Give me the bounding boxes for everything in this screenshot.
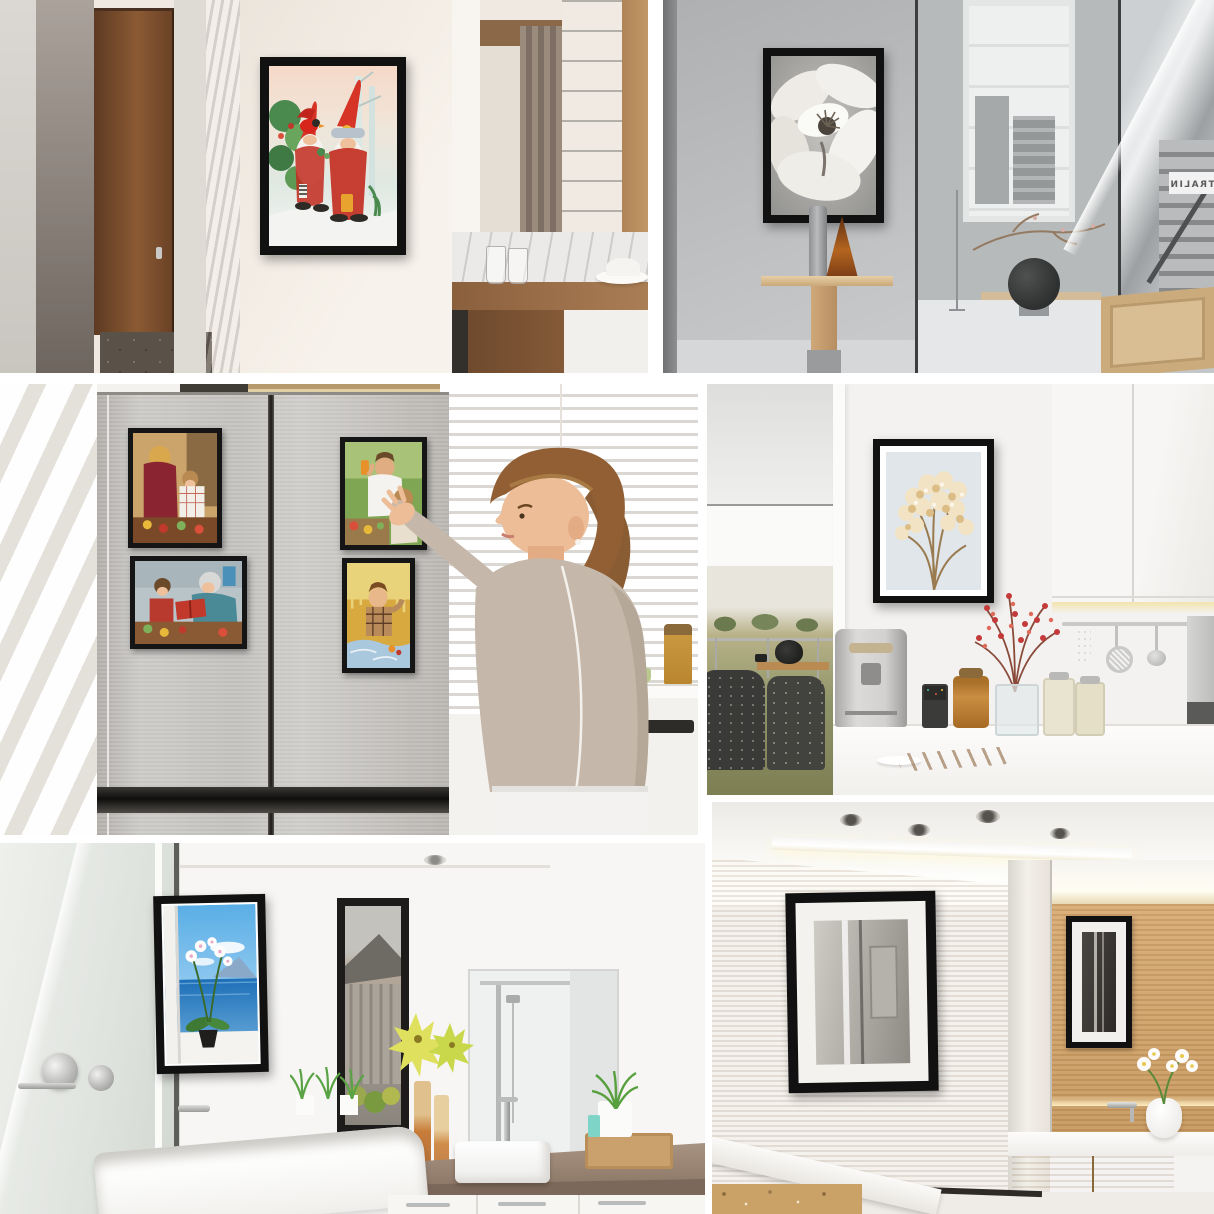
glass-vase bbox=[995, 684, 1039, 736]
wooden-tray bbox=[585, 1133, 673, 1169]
mirror-reflected-mat bbox=[1072, 922, 1126, 1042]
grass-plants bbox=[290, 1067, 364, 1099]
upper-cabinets bbox=[1052, 384, 1214, 602]
matted-frame bbox=[785, 891, 938, 1094]
white-orchid-vase bbox=[1146, 1098, 1182, 1138]
white-mat bbox=[795, 901, 928, 1083]
hallway-left-wall bbox=[0, 0, 36, 373]
desk-front bbox=[468, 310, 564, 373]
woven-chair bbox=[767, 676, 825, 770]
fridge-door-seam bbox=[268, 395, 274, 835]
magnolia-art bbox=[771, 56, 876, 215]
faucet-drop-spout bbox=[1130, 1108, 1134, 1122]
lily-flowers bbox=[388, 1001, 474, 1085]
pasta-glass-jar bbox=[1075, 682, 1105, 736]
hanging-skimmer bbox=[1106, 646, 1133, 673]
door-handle bbox=[156, 247, 162, 259]
mirror-reflected-image bbox=[1082, 932, 1116, 1032]
ceiling-recess-line bbox=[170, 865, 550, 868]
gallery-left-edge bbox=[663, 0, 677, 373]
glass-reflection-streak bbox=[0, 843, 101, 1214]
photo-reading bbox=[135, 561, 242, 644]
grass-plant bbox=[592, 1071, 640, 1109]
portafilter bbox=[861, 663, 881, 685]
drawer-handle bbox=[406, 1203, 450, 1207]
tea-cup bbox=[755, 654, 767, 662]
cabinet-seam bbox=[1132, 384, 1134, 602]
reflection-line bbox=[859, 920, 865, 1064]
ocean-orchid-art bbox=[163, 904, 258, 1064]
utensil-handle bbox=[1155, 626, 1158, 652]
patterned-sunken-rug bbox=[712, 1184, 862, 1214]
faucet-spout bbox=[498, 1097, 518, 1102]
mirror-reflection-bar bbox=[480, 981, 570, 985]
sign-text: CENTRALIN bbox=[1169, 180, 1214, 190]
railing-post bbox=[817, 638, 819, 678]
range-side-panel bbox=[1187, 616, 1214, 711]
dried-flowers-art bbox=[886, 452, 981, 590]
window-top-band bbox=[707, 506, 837, 566]
door-side-wall bbox=[174, 0, 206, 373]
mirror-reflection-hose bbox=[512, 1003, 514, 1123]
vessel-sink bbox=[455, 1141, 550, 1183]
mirror-reflected-cove bbox=[1052, 860, 1214, 904]
wooden-door bbox=[94, 8, 175, 335]
gnome-art-frame bbox=[260, 57, 406, 255]
marble-pillar-strip bbox=[206, 0, 240, 373]
ocean-art-mat bbox=[161, 902, 260, 1066]
reflected-doorway bbox=[869, 945, 899, 1019]
tub-wall-spout bbox=[178, 1105, 210, 1112]
hat-crown bbox=[606, 258, 640, 276]
mosaic-jar bbox=[922, 684, 948, 728]
dried-flowers-frame bbox=[873, 439, 994, 603]
hallway-pillar bbox=[36, 0, 94, 373]
photo-cooking bbox=[133, 433, 217, 543]
recessed-spotlight bbox=[976, 810, 1000, 823]
reflection-line bbox=[1094, 932, 1097, 1032]
teal-bottle bbox=[588, 1115, 600, 1137]
dried-flowers-mat bbox=[880, 446, 987, 596]
magnolia-frame bbox=[763, 48, 884, 223]
under-cabinet-light bbox=[1052, 602, 1214, 614]
drawer-seam bbox=[578, 1195, 580, 1214]
gnome-art-mat bbox=[269, 66, 397, 246]
chrome-bar bbox=[18, 1083, 76, 1089]
panel-white-kitchen bbox=[707, 384, 1214, 795]
jar-lid bbox=[1080, 676, 1100, 684]
recessed-spotlight bbox=[840, 814, 862, 826]
fridge-photo-frame bbox=[128, 428, 222, 548]
left-wall-shadow-stripes bbox=[0, 384, 97, 835]
white-counter-corner bbox=[564, 310, 648, 373]
hanging-ladle bbox=[1147, 650, 1166, 666]
panel-hotel-hallway bbox=[0, 0, 648, 373]
collage-root: { "collage": { "title": "Black magnetic … bbox=[0, 0, 1214, 1214]
woven-chair bbox=[707, 670, 765, 770]
panel-wood-bathroom bbox=[712, 802, 1214, 1214]
glass-tint bbox=[918, 0, 1118, 373]
gray-vessel bbox=[809, 206, 827, 278]
drinking-glass bbox=[486, 246, 506, 284]
magnolia-photo bbox=[771, 56, 876, 215]
ocean-art-frame bbox=[153, 894, 269, 1074]
tree-line bbox=[707, 610, 833, 636]
drawer-handle bbox=[598, 1201, 646, 1205]
mirror-reflected-frame bbox=[1066, 916, 1132, 1048]
reflection-line bbox=[1102, 932, 1104, 1032]
recessed-spotlight bbox=[908, 824, 930, 836]
pasta-glass-jar bbox=[1043, 678, 1075, 736]
wood-console-bench bbox=[1101, 287, 1214, 373]
gallery-floor-left bbox=[677, 340, 917, 373]
utensil-handle bbox=[1115, 626, 1118, 648]
gnome-artwork bbox=[269, 66, 397, 246]
plywood-table-top bbox=[761, 276, 893, 286]
storefront-sign: CENTRALIN bbox=[1169, 172, 1214, 194]
desk-top bbox=[452, 282, 648, 310]
vanity-counter bbox=[1008, 1132, 1214, 1156]
hanging-grater bbox=[1075, 626, 1091, 662]
fridge-photo-frame bbox=[130, 556, 247, 649]
mosaic-jar-lid bbox=[924, 686, 946, 700]
panel-bathroom-tub bbox=[0, 843, 705, 1214]
black-teapot bbox=[775, 640, 803, 664]
woman-figure bbox=[380, 424, 698, 835]
window-shade bbox=[707, 384, 837, 506]
fridge-edge-highlight bbox=[107, 395, 109, 835]
railing-post bbox=[767, 638, 769, 678]
panel-fridge-kitchen bbox=[0, 384, 698, 835]
chrome-handle-knob bbox=[88, 1065, 114, 1091]
espresso-machine bbox=[835, 629, 907, 727]
machine-buttons bbox=[849, 643, 893, 653]
ceiling-downlight bbox=[424, 855, 446, 865]
vanity-drawers bbox=[388, 1195, 705, 1214]
orchid-flowers bbox=[1124, 1040, 1204, 1104]
drip-tray bbox=[845, 711, 897, 715]
recessed-spotlight bbox=[1050, 828, 1070, 839]
drawer-seam bbox=[476, 1195, 478, 1214]
cabinet-bottom-edge bbox=[1052, 596, 1214, 598]
drawer-handle bbox=[498, 1202, 546, 1206]
balcony-railing bbox=[707, 638, 833, 641]
drinking-glass bbox=[508, 248, 528, 284]
desk-leg bbox=[452, 310, 468, 373]
mirror-reflection-showerhead bbox=[506, 995, 520, 1003]
panel-gray-gallery: CENTRALIN bbox=[663, 0, 1214, 373]
frame-inner-image bbox=[814, 919, 910, 1065]
reflection-line bbox=[842, 920, 851, 1064]
jar-lid bbox=[1049, 672, 1069, 680]
table-leg bbox=[811, 286, 837, 352]
balcony-view bbox=[707, 566, 833, 795]
table-leg-base bbox=[807, 350, 841, 373]
